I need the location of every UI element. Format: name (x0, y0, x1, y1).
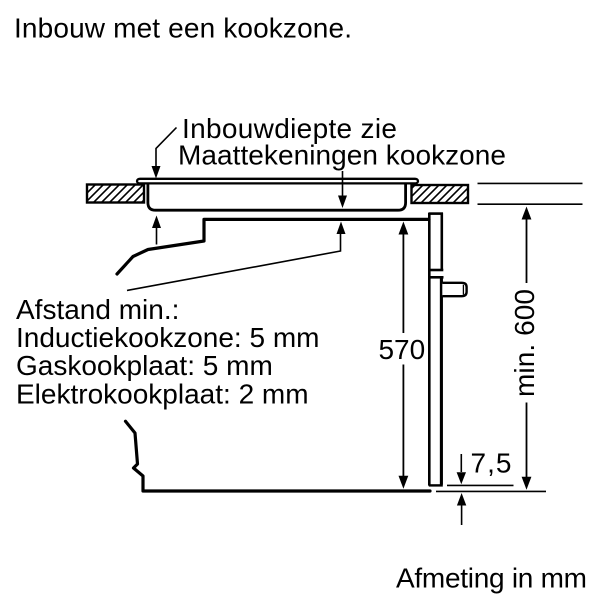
svg-text:Afstand min.:: Afstand min.: (16, 294, 179, 325)
svg-text:Maattekeningen kookzone: Maattekeningen kookzone (178, 140, 506, 171)
svg-text:Gaskookplaat: 5 mm: Gaskookplaat: 5 mm (16, 350, 273, 381)
svg-text:Elektrokookplaat: 2 mm: Elektrokookplaat: 2 mm (16, 378, 309, 409)
svg-text:min. 600: min. 600 (509, 289, 540, 397)
svg-text:Inbouw met een kookzone.: Inbouw met een kookzone. (14, 12, 352, 43)
svg-text:7,5: 7,5 (471, 448, 512, 479)
svg-text:Afmeting in mm: Afmeting in mm (396, 563, 587, 594)
svg-text:570: 570 (378, 334, 425, 365)
svg-text:Inductiekookzone: 5 mm: Inductiekookzone: 5 mm (16, 322, 320, 353)
